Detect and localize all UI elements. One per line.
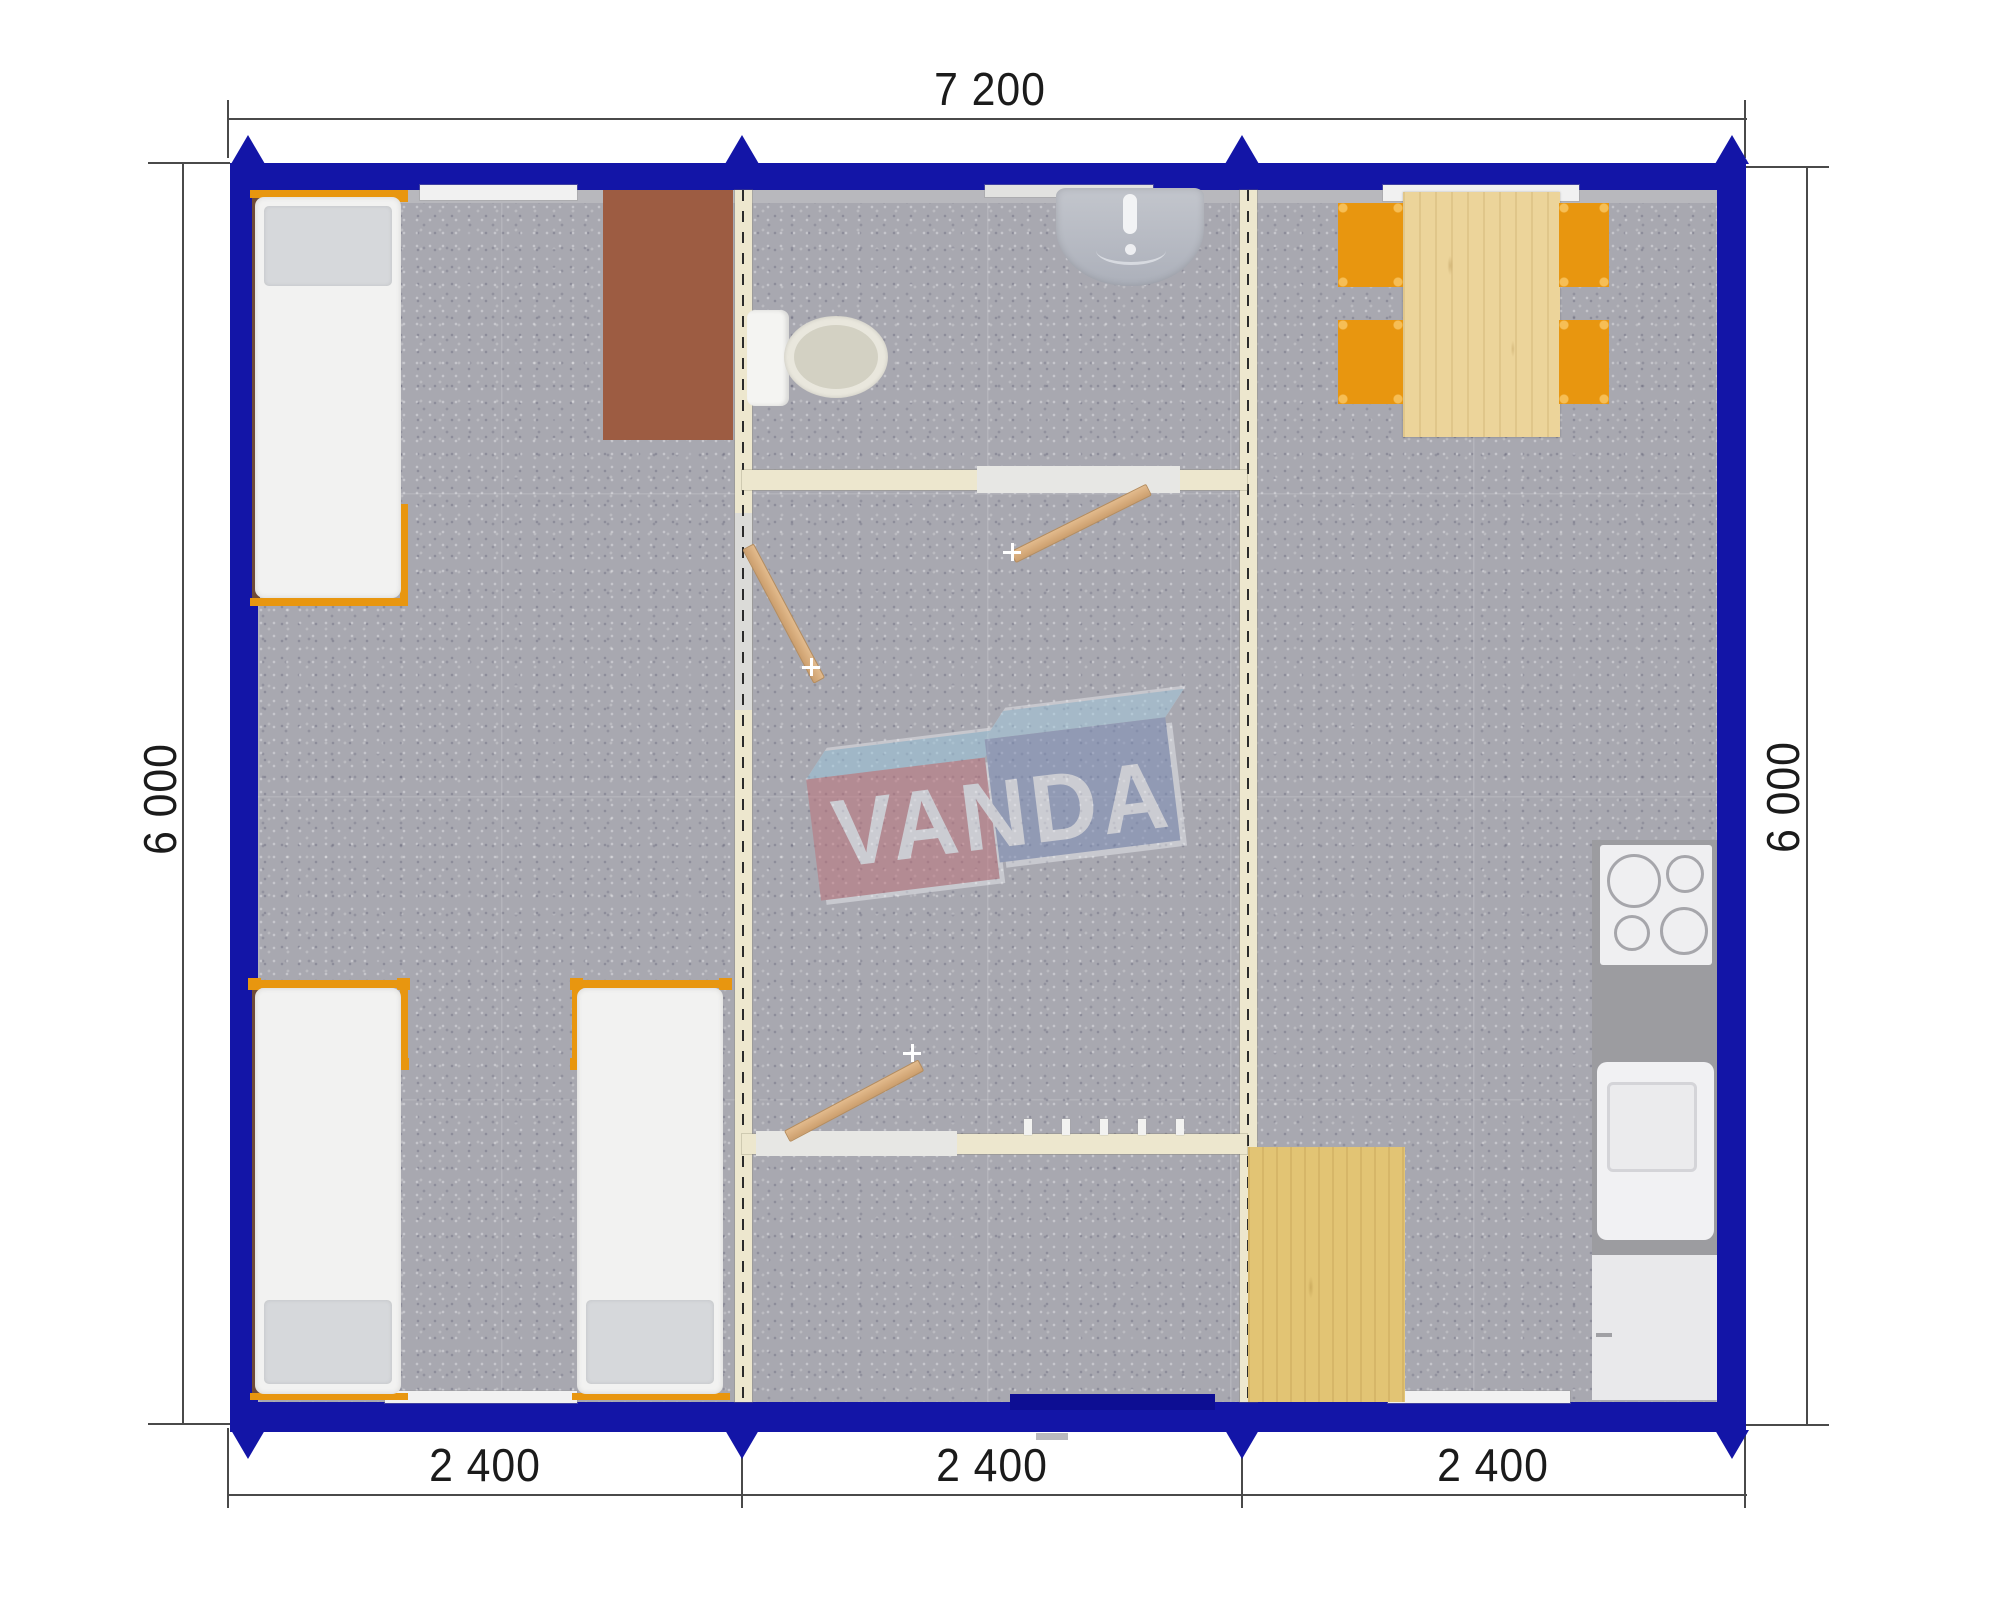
kitchen-sink: [1597, 1062, 1714, 1240]
bed-rail: [400, 512, 408, 606]
coat-peg-3: [1100, 1119, 1108, 1135]
basin-faucet: [1123, 194, 1137, 234]
bed-rail: [250, 598, 408, 606]
window-bottom-right: [1388, 1391, 1570, 1403]
module-arrow-top-3: [1225, 135, 1259, 164]
module-arrow-top-1: [231, 135, 265, 164]
chair-top-right: [1559, 203, 1609, 287]
dim-tick-left-bottom: [148, 1423, 230, 1425]
window-top-left: [420, 185, 577, 200]
module-arrow-top-2: [725, 135, 759, 164]
module-arrow-top-4: [1715, 135, 1749, 164]
module-arrow-bottom-1: [231, 1430, 265, 1459]
dim-line-top: [228, 118, 1747, 120]
coat-peg-4: [1138, 1119, 1146, 1135]
entrance-door-strip: [1010, 1394, 1215, 1410]
dim-label-top-width: 7 200: [851, 62, 1130, 116]
cooktop: [1600, 845, 1712, 965]
basin-drain: [1125, 244, 1136, 255]
fridge: [1592, 1255, 1717, 1400]
burner-medium-br: [1660, 907, 1708, 955]
dim-line-right: [1806, 166, 1808, 1426]
dim-label-left-height: 6 000: [133, 706, 187, 892]
dim-label-module-1: 2 400: [392, 1438, 578, 1492]
bed-rail: [572, 980, 730, 988]
bed-rail: [572, 1393, 730, 1400]
window-bottom-left: [385, 1391, 577, 1403]
dim-tick-right-bottom: [1745, 1424, 1829, 1426]
bed-post: [719, 978, 732, 990]
bed-rail: [250, 1393, 408, 1400]
dim-tick-left-top: [148, 162, 230, 164]
coat-peg-1: [1024, 1119, 1032, 1135]
hall-door-handle: [903, 1052, 921, 1055]
chair-bottom-left: [1338, 320, 1403, 404]
dim-line-bottom: [228, 1494, 1747, 1496]
fridge-handle: [1596, 1333, 1612, 1337]
bed-pillow: [264, 1300, 392, 1384]
dim-label-module-3: 2 400: [1400, 1438, 1586, 1492]
dim-line-left: [182, 163, 184, 1425]
bathroom-door-opening: [977, 466, 1180, 493]
module-arrow-bottom-4: [1715, 1430, 1749, 1459]
bed-rail: [400, 988, 408, 1060]
module-arrow-bottom-3: [1225, 1430, 1259, 1459]
coat-peg-2: [1062, 1119, 1070, 1135]
bed-pillow: [264, 206, 392, 286]
bed-pillow: [586, 1300, 714, 1384]
entrance-threshold: [1036, 1433, 1068, 1440]
dim-sep-bottom-0: [227, 1428, 229, 1508]
chair-bottom-right: [1559, 320, 1609, 404]
dim-label-right-height: 6 000: [1756, 704, 1810, 890]
chair-top-left: [1338, 203, 1403, 287]
dim-tick-right-top: [1745, 166, 1829, 168]
partition-left-centerline: [742, 190, 744, 1402]
wood-floor-mat: [1248, 1147, 1405, 1402]
bedroom-door-handle: [802, 666, 820, 669]
dim-ext-top-left: [227, 100, 229, 158]
desk: [603, 190, 733, 440]
module-arrow-bottom-2: [725, 1430, 759, 1459]
floor-plan: 7 200 6 000 6 000 2 400 2 400 2 400: [0, 0, 2000, 1597]
sink-basin: [1607, 1082, 1697, 1172]
burner-large: [1607, 854, 1661, 908]
bed-rail: [250, 980, 408, 988]
coat-peg-5: [1176, 1119, 1184, 1135]
bathroom-door-handle: [1003, 551, 1021, 554]
dining-table: [1403, 192, 1560, 437]
toilet-seat: [794, 325, 878, 389]
burner-small-bl: [1614, 915, 1650, 951]
dim-label-module-2: 2 400: [899, 1438, 1085, 1492]
burner-small-tr: [1666, 855, 1704, 893]
toilet-tank: [747, 310, 789, 406]
